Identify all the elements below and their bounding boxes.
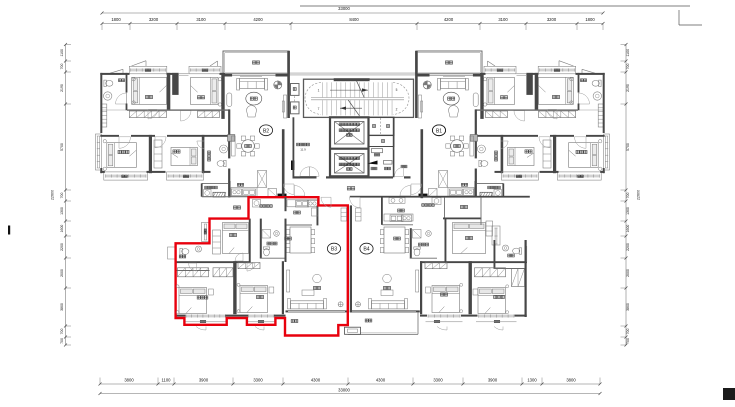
svg-text:11.9: 11.9 xyxy=(300,148,306,152)
svg-text:3800: 3800 xyxy=(626,303,630,311)
svg-text:7: 7 xyxy=(318,107,320,111)
svg-text:4300: 4300 xyxy=(376,377,386,382)
svg-text:700: 700 xyxy=(626,193,630,199)
svg-text:700: 700 xyxy=(60,329,64,335)
svg-text:2200: 2200 xyxy=(626,243,630,251)
svg-text:B3: B3 xyxy=(331,247,337,253)
svg-text:B1: B1 xyxy=(436,128,442,134)
svg-text:3300: 3300 xyxy=(253,377,263,382)
svg-text:5700: 5700 xyxy=(626,143,630,151)
svg-text:1100: 1100 xyxy=(161,377,171,382)
svg-text:5700: 5700 xyxy=(60,143,64,151)
svg-text:1100: 1100 xyxy=(626,49,630,57)
svg-text:700: 700 xyxy=(626,338,630,344)
svg-text:3800: 3800 xyxy=(60,303,64,311)
svg-text:22600: 22600 xyxy=(637,190,641,200)
svg-text:1300: 1300 xyxy=(60,207,64,215)
svg-text:1100: 1100 xyxy=(60,49,64,57)
svg-text:5: 5 xyxy=(396,88,398,92)
svg-text:B4: B4 xyxy=(363,247,369,253)
svg-text:3300: 3300 xyxy=(433,377,443,382)
svg-text:2200: 2200 xyxy=(60,243,64,251)
svg-text:4200: 4200 xyxy=(444,17,454,22)
svg-text:4200: 4200 xyxy=(253,17,263,22)
svg-text:3200: 3200 xyxy=(547,17,557,22)
svg-text:700: 700 xyxy=(60,338,64,344)
svg-text:B2: B2 xyxy=(263,128,269,134)
svg-text:2000: 2000 xyxy=(60,269,64,277)
svg-text:22600: 22600 xyxy=(51,190,55,200)
svg-text:700: 700 xyxy=(626,329,630,335)
svg-text:1800: 1800 xyxy=(585,17,595,22)
svg-text:700: 700 xyxy=(626,64,630,70)
svg-text:33000: 33000 xyxy=(338,387,350,392)
svg-text:1300: 1300 xyxy=(626,207,630,215)
svg-text:3900: 3900 xyxy=(488,377,498,382)
svg-text:4300: 4300 xyxy=(311,377,321,382)
svg-text:700: 700 xyxy=(60,64,64,70)
svg-text:33000: 33000 xyxy=(338,6,350,11)
svg-text:3100: 3100 xyxy=(498,17,508,22)
svg-text:2: 2 xyxy=(396,108,398,112)
svg-text:2190: 2190 xyxy=(626,84,630,92)
svg-text:1600: 1600 xyxy=(60,225,64,233)
svg-text:1600: 1600 xyxy=(626,225,630,233)
svg-text:8400: 8400 xyxy=(349,17,359,22)
svg-text:700: 700 xyxy=(60,193,64,199)
svg-text:2190: 2190 xyxy=(60,84,64,92)
svg-text:1300: 1300 xyxy=(527,377,537,382)
svg-text:3800: 3800 xyxy=(124,377,134,382)
svg-text:2000: 2000 xyxy=(626,269,630,277)
svg-text:3900: 3900 xyxy=(199,377,209,382)
svg-text:3200: 3200 xyxy=(149,17,159,22)
svg-text:3100: 3100 xyxy=(196,17,206,22)
svg-text:1: 1 xyxy=(318,89,320,93)
svg-text:3800: 3800 xyxy=(566,377,576,382)
svg-text:1800: 1800 xyxy=(111,17,121,22)
